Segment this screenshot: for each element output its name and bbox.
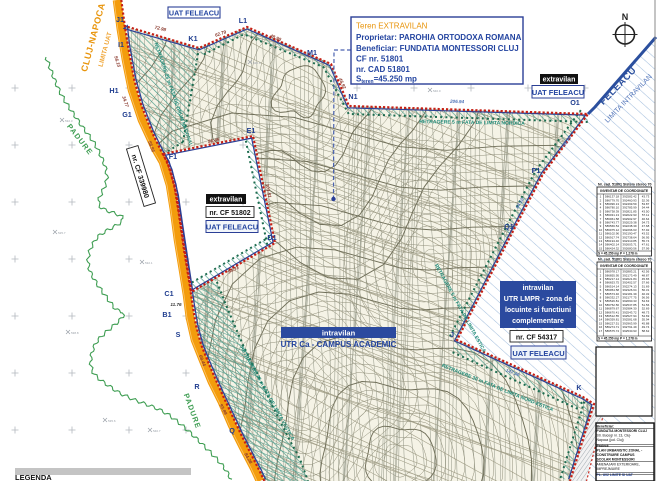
svg-text:11.76: 11.76: [170, 302, 182, 307]
svg-text:57.99: 57.99: [642, 246, 650, 250]
svg-text:AMENAJARI EXTERIOARE,: AMENAJARI EXTERIOARE,: [597, 463, 640, 467]
svg-text:Q1: Q1: [504, 222, 514, 231]
svg-text:S = 45.250 mp P = 1.278 m: S = 45.250 mp P = 1.278 m: [598, 252, 638, 256]
svg-text:extravilan: extravilan: [543, 77, 576, 84]
svg-text:CONSTRUIRE CAMPUS: CONSTRUIRE CAMPUS: [597, 453, 636, 457]
svg-text:58.62: 58.62: [642, 329, 650, 333]
svg-text:FUNDATIA MONTESSORI CLUJ: FUNDATIA MONTESSORI CLUJ: [597, 429, 648, 433]
svg-text:M1: M1: [307, 48, 317, 57]
svg-text:D1: D1: [267, 233, 276, 242]
svg-text:392680.56: 392680.56: [622, 246, 637, 250]
svg-text:540.0: 540.0: [433, 89, 441, 93]
svg-text:IMPREJMUIRE: IMPREJMUIRE: [597, 467, 621, 471]
svg-text:Beneficiar:: Beneficiar:: [597, 425, 615, 429]
svg-text:Q: Q: [229, 426, 235, 435]
svg-text:intravilan: intravilan: [322, 329, 356, 338]
svg-text:PLAN URBANISTIC ZONAL -: PLAN URBANISTIC ZONAL -: [597, 449, 643, 453]
svg-text:INVENTAR DE COORDONATE: INVENTAR DE COORDONATE: [600, 264, 649, 268]
svg-text:Napoca (jud. Cluj): Napoca (jud. Cluj): [597, 438, 624, 442]
svg-text:UAT FELEACU: UAT FELEACU: [512, 349, 564, 358]
svg-text:S: S: [176, 330, 181, 339]
svg-text:L1: L1: [239, 16, 247, 25]
svg-text:extravilan: extravilan: [210, 197, 243, 204]
svg-text:N: N: [622, 12, 629, 22]
svg-text:Nr. cad. 51801 Sistem stereo 7: Nr. cad. 51801 Sistem stereo 70: [598, 183, 652, 187]
svg-text:K: K: [576, 383, 582, 392]
svg-text:C1: C1: [164, 289, 173, 298]
svg-text:586424.32: 586424.32: [605, 246, 620, 250]
svg-text:N1: N1: [348, 92, 357, 101]
svg-text:UAT FELEACU: UAT FELEACU: [532, 88, 584, 97]
svg-text:E1: E1: [247, 126, 256, 135]
svg-text:UAT FELEACU: UAT FELEACU: [206, 223, 258, 232]
svg-text:586575.74: 586575.74: [605, 329, 620, 333]
svg-text:locuinte si functiuni: locuinte si functiuni: [505, 307, 571, 314]
svg-text:17: 17: [599, 329, 603, 333]
svg-text:206.94: 206.94: [449, 99, 465, 105]
svg-text:Beneficiar: FUNDATIA MONTESSOR: Beneficiar: FUNDATIA MONTESSORI CLUJ: [356, 44, 519, 53]
svg-text:UAT FELEACU: UAT FELEACU: [169, 9, 219, 18]
svg-text:O1: O1: [570, 98, 580, 107]
svg-text:15: 15: [599, 246, 603, 250]
svg-text:intravilan: intravilan: [522, 285, 553, 292]
svg-text:Proprietar: PAROHIA ORTODOXA R: Proprietar: PAROHIA ORTODOXA ROMANA: [356, 33, 522, 42]
svg-text:Nr. cad. 51801 Sistem stereo 7: Nr. cad. 51801 Sistem stereo 70: [598, 258, 652, 262]
svg-text:H1: H1: [109, 86, 118, 95]
svg-text:CF nr. 51801: CF nr. 51801: [356, 55, 404, 64]
svg-text:nr. CF 54317: nr. CF 54317: [516, 335, 557, 342]
svg-text:Teren EXTRAVILAN: Teren EXTRAVILAN: [356, 22, 428, 31]
svg-text:535.6: 535.6: [108, 419, 116, 423]
svg-text:nr. CF 51802: nr. CF 51802: [209, 210, 250, 217]
svg-text:F1: F1: [169, 152, 177, 161]
svg-text:532.1: 532.1: [145, 261, 153, 265]
svg-text:INVENTAR DE COORDONATE: INVENTAR DE COORDONATE: [600, 189, 649, 193]
svg-text:Str. Bucegi nr. 13, Cluj-: Str. Bucegi nr. 13, Cluj-: [597, 434, 632, 438]
svg-text:UTR LMPR - zona de: UTR LMPR - zona de: [504, 296, 573, 303]
svg-text:K1: K1: [188, 34, 197, 43]
svg-text:SCOLAR MONTESSORI: SCOLAR MONTESSORI: [597, 458, 635, 462]
svg-text:nr. CAD 51801: nr. CAD 51801: [356, 65, 410, 74]
svg-text:540.7: 540.7: [153, 429, 161, 433]
svg-text:B1: B1: [162, 310, 171, 319]
svg-text:392530.93: 392530.93: [622, 329, 637, 333]
svg-text:J1: J1: [116, 15, 124, 24]
svg-text:P1: P1: [532, 166, 541, 175]
svg-text:I1: I1: [118, 40, 124, 49]
svg-text:525.7: 525.7: [58, 231, 66, 235]
svg-text:R: R: [194, 382, 200, 391]
svg-text:PL. U02 LIMITE SI UAT: PL. U02 LIMITE SI UAT: [597, 473, 634, 477]
svg-text:complementare: complementare: [512, 318, 564, 325]
svg-text:S = 45.250 mp P = 1.278 m: S = 45.250 mp P = 1.278 m: [598, 337, 638, 341]
svg-text:G1: G1: [122, 110, 132, 119]
svg-text:520.8: 520.8: [253, 61, 261, 65]
svg-text:538.8: 538.8: [71, 331, 79, 335]
svg-text:UTR Ca - CAMPUS ACADEMIC: UTR Ca - CAMPUS ACADEMIC: [281, 340, 397, 349]
svg-text:LEGENDA: LEGENDA: [15, 473, 52, 481]
svg-text:J: J: [450, 330, 454, 339]
